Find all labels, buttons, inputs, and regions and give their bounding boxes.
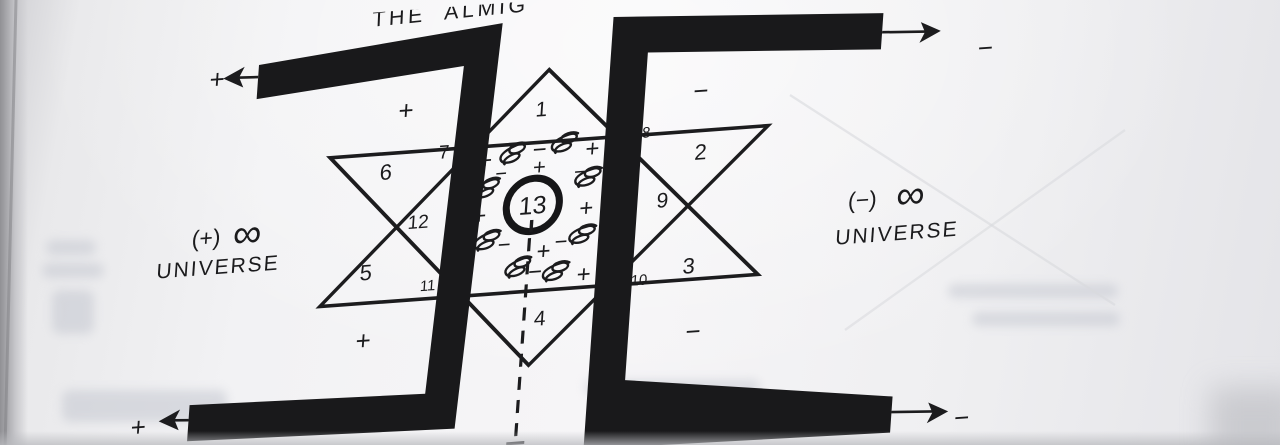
number-9: 9 [656,189,669,213]
coil-icon [551,131,580,154]
left-bottom-arrow [173,419,189,421]
number-7: 7 [438,142,450,164]
number-6: 6 [379,159,393,185]
diagram-svg: THE ALMIG 13 [0,0,1280,445]
coil-icon [569,223,597,244]
left-universe-text: UNIVERSE [156,252,281,284]
minus-sign: − [977,32,994,63]
number-2: 2 [694,139,708,165]
minus-sign: − [527,258,543,286]
plus-sign: + [578,194,594,222]
right-polarity: (−) [847,186,878,214]
bottom-shadow [0,431,1280,445]
number-13: 13 [518,191,548,221]
minus-sign: − [573,161,586,184]
minus-sign: − [554,228,569,254]
plus-sign: + [355,325,372,356]
number-4: 4 [533,307,547,331]
number-1: 1 [535,98,548,122]
universe-right-label: (−) ∞ UNIVERSE [834,169,962,250]
plus-sign: + [532,154,547,180]
right-bottom-arrow [891,409,933,415]
minus-sign: − [692,75,709,106]
minus-sign: − [497,232,512,258]
right-universe-text: UNIVERSE [834,218,959,250]
right-top-arrow [882,29,926,35]
infinity-icon: ∞ [231,210,263,257]
plus-sign: + [209,64,226,95]
plus-sign: + [576,261,592,289]
number-8: 8 [641,124,651,142]
book-page-photo: THE ALMIG 13 [0,0,1280,445]
minus-sign: − [953,402,970,433]
number-3: 3 [682,253,696,279]
plus-sign: + [397,95,414,126]
number-5: 5 [359,260,373,286]
diagram: THE ALMIG 13 [0,0,1280,445]
minus-sign: − [685,316,702,347]
number-10: 10 [630,272,648,290]
number-12: 12 [407,212,430,235]
universe-left-label: (+) ∞ UNIVERSE [156,208,284,283]
left-polarity: (+) [191,224,222,252]
infinity-icon: ∞ [895,171,927,218]
center-circle-dash [531,220,532,232]
corner-shadow [1210,387,1280,445]
minus-sign: − [495,163,508,186]
number-11: 11 [419,277,436,295]
right-bracket [583,0,920,445]
plus-sign: + [584,135,600,163]
